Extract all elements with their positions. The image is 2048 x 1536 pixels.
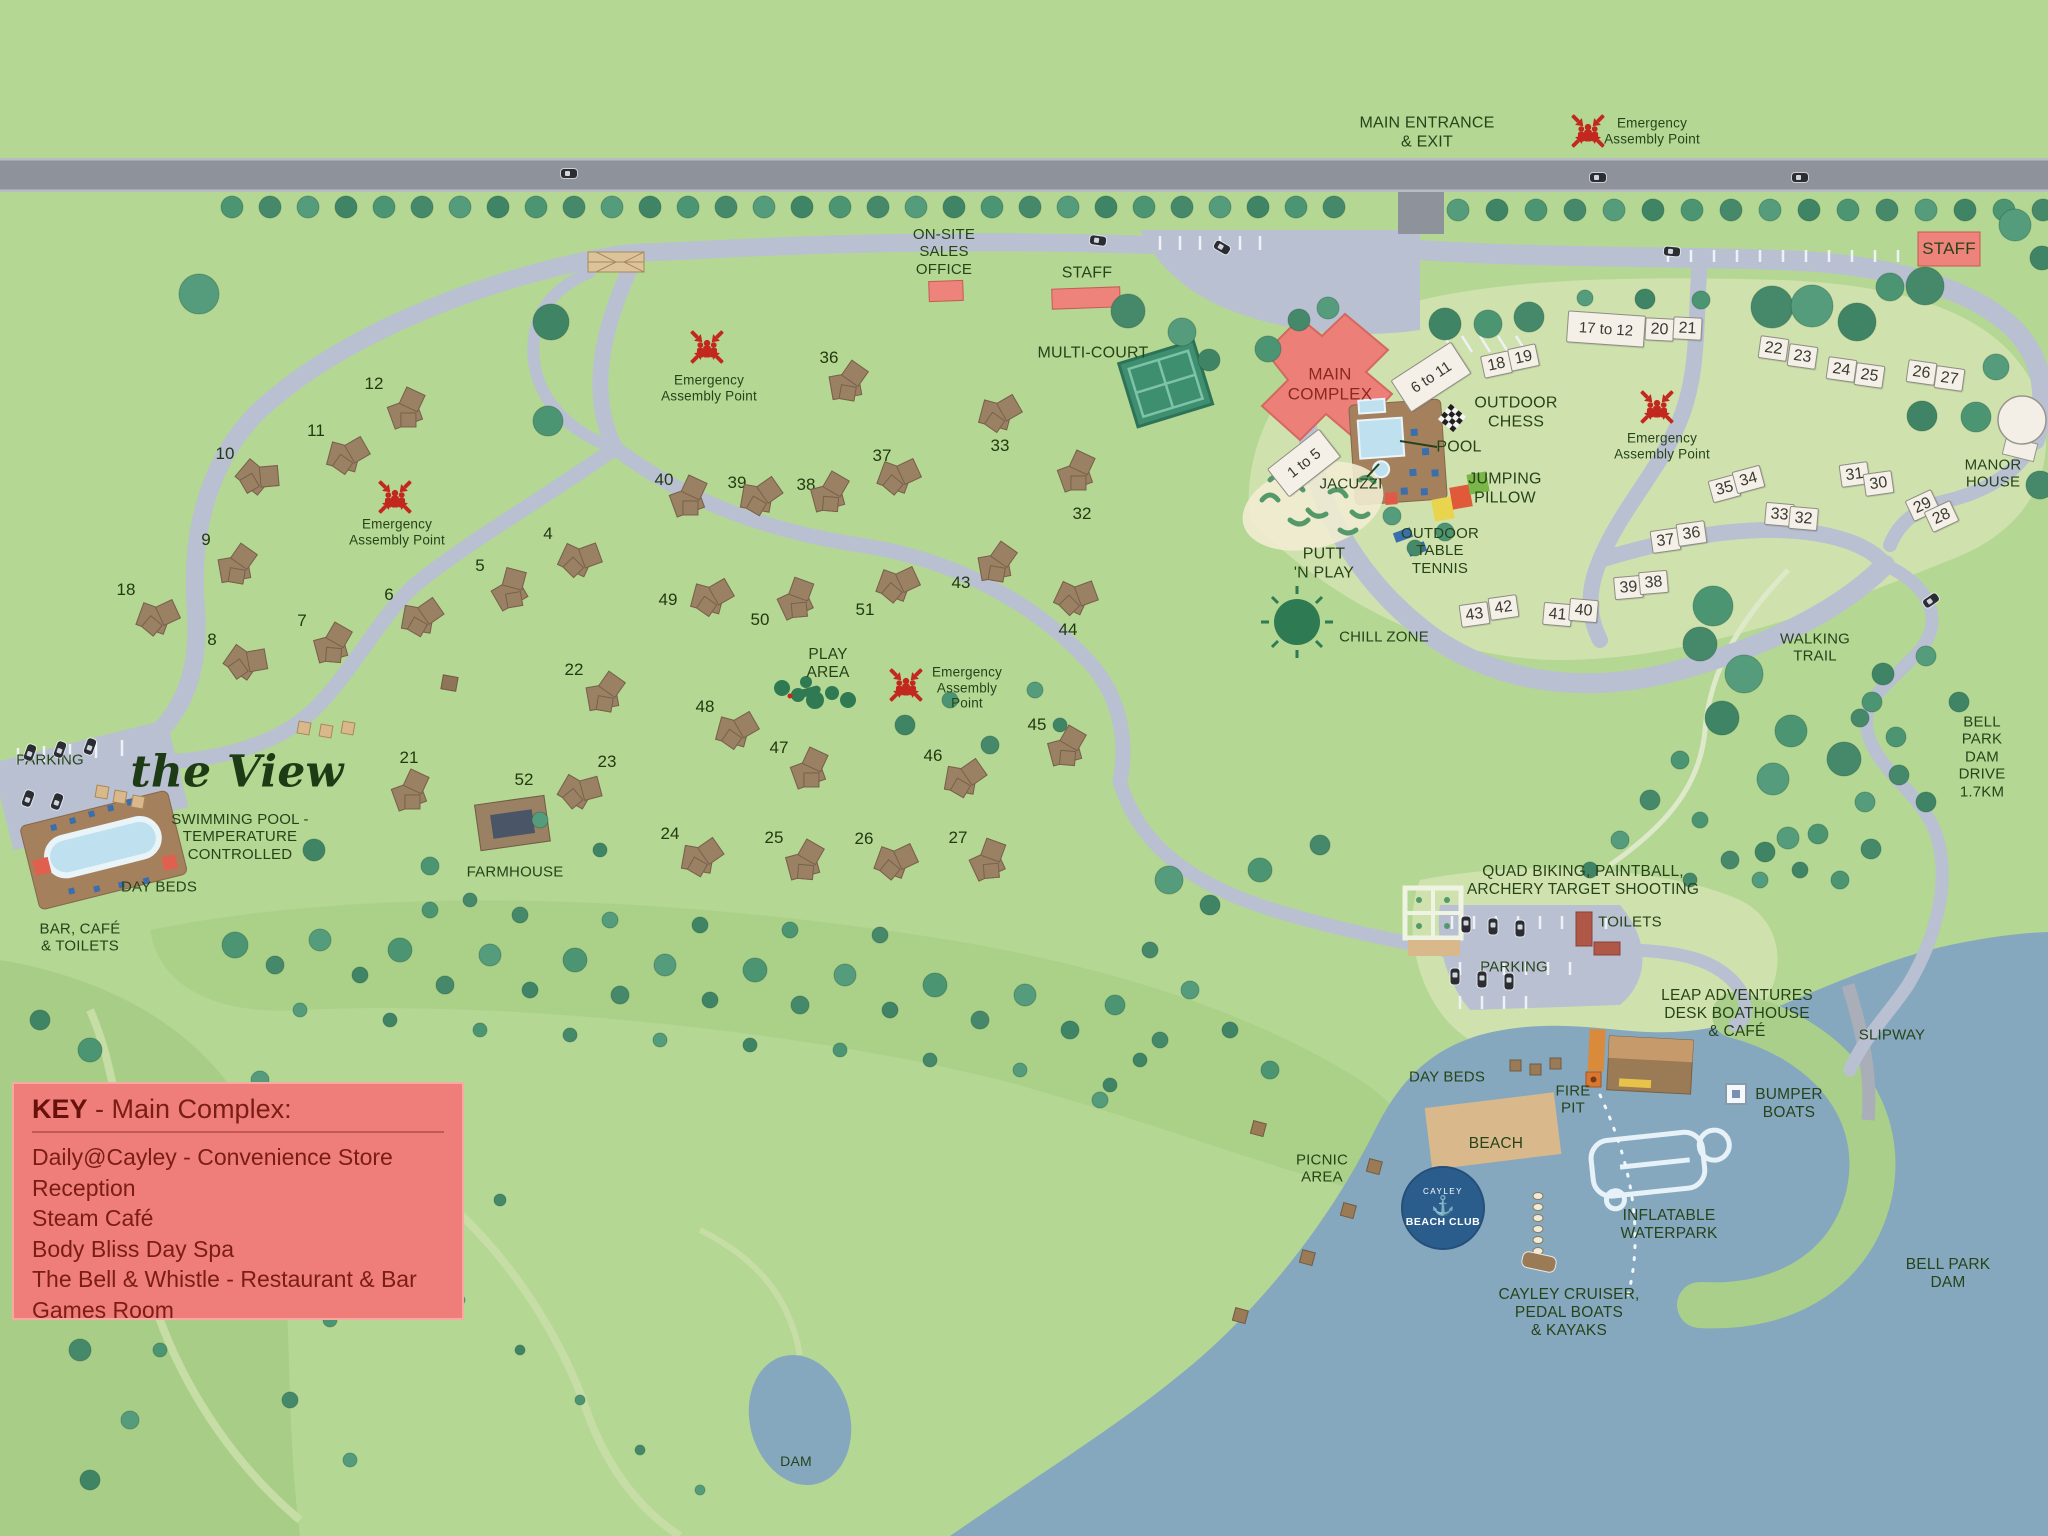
label-the-view: the View <box>130 746 343 797</box>
beach-club-logo: CAYLEY ⚓ BEACH CLUB <box>1401 1166 1485 1250</box>
tree-icon <box>833 1043 847 1057</box>
tree-icon <box>1155 866 1183 894</box>
tree-icon <box>635 1445 645 1455</box>
tree-icon <box>1255 336 1281 362</box>
lodge-40: 40 <box>1568 597 1599 622</box>
staff-building-center <box>1052 287 1121 309</box>
tree-icon <box>293 1003 307 1017</box>
tree-icon <box>895 715 915 735</box>
lodge-38: 38 <box>1638 569 1669 594</box>
lodge-number-10: 10 <box>216 444 235 464</box>
tree-icon <box>1640 790 1660 810</box>
tree-icon <box>1862 692 1882 712</box>
tree-icon <box>1949 692 1969 712</box>
tree-icon <box>69 1339 91 1361</box>
lodge-number-51: 51 <box>856 600 875 620</box>
tree-icon <box>1019 196 1041 218</box>
tree-icon <box>266 956 284 974</box>
label-bell-park-dam: BELL PARK DAM <box>1906 1256 1991 1292</box>
tree-icon <box>1683 627 1717 661</box>
tree-icon <box>1692 812 1708 828</box>
tree-icon <box>1152 1032 1168 1048</box>
tree-icon <box>1247 196 1269 218</box>
tree-icon <box>1642 199 1664 221</box>
lodge-number-26: 26 <box>855 829 874 849</box>
tree-icon <box>943 196 965 218</box>
car-icon <box>1089 234 1106 245</box>
tree-icon <box>1671 751 1689 769</box>
tree-icon <box>436 976 454 994</box>
lodge-21: 21 <box>1672 316 1702 340</box>
lodge-20: 20 <box>1644 317 1674 341</box>
lodge-number-6: 6 <box>384 585 393 605</box>
tree-icon <box>1775 715 1807 747</box>
tree-icon <box>1105 995 1125 1015</box>
tree-icon <box>1027 682 1043 698</box>
tree-icon <box>153 1343 167 1357</box>
car-icon <box>561 169 577 178</box>
tree-icon <box>383 1013 397 1027</box>
car-icon <box>1462 916 1471 932</box>
label-walking-trail: WALKING TRAIL <box>1780 631 1850 666</box>
tree-icon <box>1577 290 1593 306</box>
tree-icon <box>1999 209 2031 241</box>
tree-icon <box>563 1028 577 1042</box>
lodge-building-39 <box>735 473 787 520</box>
tree-icon <box>1013 1063 1027 1077</box>
tree-icon <box>1383 507 1401 525</box>
tree-icon <box>533 304 569 340</box>
tree-icon <box>525 196 547 218</box>
assembly-point-label: Emergency Assembly Point <box>1604 115 1700 146</box>
tree-icon <box>1171 196 1193 218</box>
tree-icon <box>1222 1022 1238 1038</box>
label-staff-right: STAFF <box>1922 239 1976 259</box>
label-jumping-pillow: JUMPING PILLOW <box>1468 470 1541 507</box>
label-bar-cafe-toilets: BAR, CAFÉ & TOILETS <box>40 921 121 956</box>
label-jacuzzi: JACUZZI <box>1319 475 1382 492</box>
tree-icon <box>532 812 548 828</box>
tree-icon <box>80 1470 100 1490</box>
tree-icon <box>1198 349 1220 371</box>
tree-icon <box>715 196 737 218</box>
tree-icon <box>121 1411 139 1429</box>
label-sales-office: ON-SITE SALES OFFICE <box>913 226 975 278</box>
lodge-number-47: 47 <box>770 738 789 758</box>
lodge-24: 24 <box>1825 356 1857 383</box>
tree-icon <box>1855 792 1875 812</box>
lodge-building-9 <box>212 542 264 589</box>
bench-canopy <box>588 252 644 272</box>
lodge-32: 32 <box>1788 505 1819 530</box>
tree-icon <box>1168 318 1196 346</box>
tree-icon <box>388 938 412 962</box>
tree-icon <box>282 1392 298 1408</box>
tree-icon <box>1133 196 1155 218</box>
tree-icon <box>611 986 629 1004</box>
sales-office-building <box>929 280 964 301</box>
tree-icon <box>179 274 219 314</box>
tree-icon <box>1693 586 1733 626</box>
lodge-number-43: 43 <box>952 573 971 593</box>
label-slipway: SLIPWAY <box>1859 1026 1925 1043</box>
car-icon <box>1664 246 1681 256</box>
tree-icon <box>1983 354 2009 380</box>
lodge-number-12: 12 <box>365 374 384 394</box>
lodge-building-24 <box>676 834 728 881</box>
tree-icon <box>1838 303 1876 341</box>
lodge-number-24: 24 <box>661 824 680 844</box>
tree-icon <box>1014 984 1036 1006</box>
tree-icon <box>923 973 947 997</box>
tree-icon <box>1285 196 1307 218</box>
main-road <box>0 158 2048 192</box>
tree-icon <box>971 1011 989 1029</box>
lodge-number-52: 52 <box>515 770 534 790</box>
tree-icon <box>1752 872 1768 888</box>
tree-icon <box>677 196 699 218</box>
tree-icon <box>1603 199 1625 221</box>
label-quad-biking: QUAD BIKING, PAINTBALL, ARCHERY TARGET S… <box>1467 863 1699 899</box>
lodge-building-36 <box>823 359 875 406</box>
tree-icon <box>335 196 357 218</box>
tree-icon <box>882 1002 898 1018</box>
tree-icon <box>1429 308 1461 340</box>
tree-icon <box>1111 294 1145 328</box>
tree-icon <box>1886 727 1906 747</box>
tree-icon <box>1057 196 1079 218</box>
tree-icon <box>494 1194 506 1206</box>
tree-icon <box>563 948 587 972</box>
tree-icon <box>1486 199 1508 221</box>
label-putt-n-play: PUTT 'N PLAY <box>1294 545 1354 582</box>
assembly-point-label: Emergency Assembly Point <box>932 665 1002 712</box>
lodge-number-45: 45 <box>1028 715 1047 735</box>
lodge-23: 23 <box>1786 343 1818 370</box>
tree-icon <box>702 992 718 1008</box>
tree-icon <box>533 406 563 436</box>
tree-icon <box>867 196 889 218</box>
label-beach: BEACH <box>1469 1135 1523 1153</box>
tree-icon <box>1142 942 1158 958</box>
label-farmhouse: FARMHOUSE <box>467 863 564 880</box>
lodge-number-46: 46 <box>924 746 943 766</box>
tree-icon <box>1310 835 1330 855</box>
anchor-icon: ⚓ <box>1431 1197 1455 1216</box>
tree-icon <box>743 1038 757 1052</box>
label-dam: DAM <box>780 1453 812 1469</box>
tree-icon <box>1447 199 1469 221</box>
bumper-boats-icon <box>1726 1084 1746 1104</box>
tree-icon <box>1181 981 1199 999</box>
tree-icon <box>1872 663 1894 685</box>
tree-icon <box>1288 309 1310 331</box>
tree-icon <box>259 196 281 218</box>
tree-icon <box>1755 842 1775 862</box>
tree-icon <box>1200 895 1220 915</box>
entrance-stub <box>1398 192 1444 234</box>
tree-icon <box>522 982 538 998</box>
label-cayley-cruiser: CAYLEY CRUISER, PEDAL BOATS & KAYAKS <box>1498 1286 1639 1340</box>
label-bumper-boats: BUMPER BOATS <box>1755 1086 1823 1122</box>
label-staff-center: STAFF <box>1062 265 1112 284</box>
lodge-number-23: 23 <box>598 752 617 772</box>
beach-club-name: BEACH CLUB <box>1406 1217 1480 1228</box>
tree-icon <box>1954 199 1976 221</box>
tree-icon <box>411 196 433 218</box>
tree-icon <box>421 857 439 875</box>
tree-icon <box>1103 1078 1117 1092</box>
tree-icon <box>1133 1053 1147 1067</box>
car-icon <box>1590 173 1606 182</box>
label-inflatable-waterpark: INFLATABLE WATERPARK <box>1620 1207 1717 1243</box>
lodge-number-32: 32 <box>1073 504 1092 524</box>
tree-icon <box>487 196 509 218</box>
label-manor-house: MANOR HOUSE <box>1965 457 2022 492</box>
tree-icon <box>753 196 775 218</box>
tree-icon <box>479 944 501 966</box>
label-pool: POOL <box>1436 439 1481 458</box>
tree-icon <box>1791 285 1833 327</box>
tree-icon <box>1827 742 1861 776</box>
tree-icon <box>1751 286 1793 328</box>
lodge-43: 43 <box>1458 601 1490 628</box>
tree-icon <box>692 917 708 933</box>
label-outdoor-chess: OUTDOOR CHESS <box>1474 394 1557 431</box>
label-play-area: PLAY AREA <box>806 646 849 682</box>
resort-map: KEY - Main Complex: Daily@Cayley - Conve… <box>0 0 2048 1536</box>
key-item: Body Bliss Day Spa <box>32 1234 444 1265</box>
lodge-42: 42 <box>1487 594 1519 621</box>
lodge-number-21: 21 <box>400 748 419 768</box>
tree-icon <box>473 1023 487 1037</box>
lodge-number-50: 50 <box>751 610 770 630</box>
tree-icon <box>905 196 927 218</box>
car-icon <box>1516 920 1525 936</box>
tree-icon <box>602 912 618 928</box>
tree-icon <box>743 958 767 982</box>
lodge-27: 27 <box>1933 365 1965 392</box>
assembly-point-label: Emergency Assembly Point <box>661 372 757 403</box>
tree-icon <box>834 964 856 986</box>
tree-icon <box>515 1345 525 1355</box>
tree-icon <box>1725 655 1763 693</box>
assembly-point-icon <box>684 324 730 370</box>
label-leap-adventures: LEAP ADVENTURES DESK BOATHOUSE & CAFÉ <box>1661 987 1813 1041</box>
label-outdoor-table-tennis: OUTDOOR TABLE TENNIS <box>1401 525 1479 577</box>
tree-icon <box>78 1038 102 1062</box>
label-swimming-pool: SWIMMING POOL - TEMPERATURE CONTROLLED <box>171 811 308 863</box>
lodge-number-4: 4 <box>543 524 552 544</box>
key-item: Games Room <box>32 1295 444 1326</box>
lodge-number-8: 8 <box>207 630 216 650</box>
lodge-number-49: 49 <box>659 590 678 610</box>
lodge-number-33: 33 <box>991 436 1010 456</box>
tree-icon <box>1798 199 1820 221</box>
lodge-number-48: 48 <box>696 697 715 717</box>
tree-icon <box>601 196 623 218</box>
tree-icon <box>1095 196 1117 218</box>
assembly-point-label: Emergency Assembly Point <box>349 516 445 547</box>
tree-icon <box>1757 763 1789 795</box>
assembly-point-icon <box>883 662 929 708</box>
lodge-number-25: 25 <box>765 828 784 848</box>
lodge-number-7: 7 <box>297 611 306 631</box>
tree-icon <box>593 843 607 857</box>
lodge-number-27: 27 <box>949 828 968 848</box>
key-item: Steam Café <box>32 1203 444 1234</box>
label-main-complex: MAIN COMPLEX <box>1288 364 1373 403</box>
lodge-number-11: 11 <box>307 421 325 441</box>
tree-icon <box>1777 827 1799 849</box>
key-legend: KEY - Main Complex: Daily@Cayley - Conve… <box>12 1082 464 1320</box>
tree-icon <box>512 907 528 923</box>
tree-icon <box>1317 297 1339 319</box>
tree-icon <box>1248 858 1272 882</box>
tree-icon <box>1808 824 1828 844</box>
tree-icon <box>1861 839 1881 859</box>
small-hut <box>441 675 458 691</box>
tree-icon <box>1564 199 1586 221</box>
tree-icon <box>981 736 999 754</box>
tree-icon <box>1323 196 1345 218</box>
tree-icon <box>695 1485 705 1495</box>
label-multi-court: MULTI-COURT <box>1038 345 1149 364</box>
key-item: Reception <box>32 1173 444 1204</box>
tree-icon <box>1906 267 1944 305</box>
lodge-22: 22 <box>1757 335 1789 362</box>
tree-icon <box>575 1395 585 1405</box>
tree-icon <box>563 196 585 218</box>
lodge-25: 25 <box>1853 362 1885 389</box>
car-icon <box>1451 968 1460 984</box>
tree-icon <box>1261 1061 1279 1079</box>
tree-icon <box>30 1010 50 1030</box>
lodge-number-44: 44 <box>1059 620 1078 640</box>
key-item: The Bell & Whistle - Restaurant & Bar <box>32 1264 444 1295</box>
tree-icon <box>782 922 798 938</box>
tree-icon <box>309 929 331 951</box>
car-icon <box>1792 173 1808 182</box>
tree-icon <box>1720 199 1742 221</box>
tree-icon <box>1792 862 1808 878</box>
assembly-point-label: Emergency Assembly Point <box>1614 430 1710 461</box>
tree-icon <box>1889 765 1909 785</box>
label-main-entrance: MAIN ENTRANCE & EXIT <box>1359 114 1494 151</box>
lodge-36: 36 <box>1675 520 1707 547</box>
tree-icon <box>352 967 368 983</box>
tree-icon <box>1907 401 1937 431</box>
tree-icon <box>981 196 1003 218</box>
tree-icon <box>653 1033 667 1047</box>
lodge-building-43 <box>972 540 1024 587</box>
key-title: KEY - Main Complex: <box>32 1094 444 1124</box>
tree-icon <box>872 927 888 943</box>
tree-icon <box>1635 289 1655 309</box>
tree-icon <box>1474 310 1502 338</box>
label-toilets: TOILETS <box>1598 913 1662 930</box>
tree-icon <box>1681 199 1703 221</box>
tree-icon <box>1611 831 1629 849</box>
label-fire-pit: FIRE PIT <box>1556 1083 1591 1118</box>
tree-icon <box>1705 701 1739 735</box>
tree-icon <box>1837 199 1859 221</box>
tree-icon <box>422 902 438 918</box>
assembly-point-icon <box>372 474 418 520</box>
label-picnic-area: PICNIC AREA <box>1296 1152 1348 1187</box>
tree-icon <box>1759 199 1781 221</box>
tree-icon <box>791 196 813 218</box>
lodge-number-18: 18 <box>117 580 136 600</box>
tree-icon <box>1061 1021 1079 1039</box>
tree-icon <box>221 196 243 218</box>
label-day-beds-left: DAY BEDS <box>121 878 197 895</box>
car-icon <box>1478 971 1487 987</box>
lodge-building-46 <box>939 755 991 802</box>
assembly-point-icon <box>1634 384 1680 430</box>
tree-icon <box>1721 851 1739 869</box>
tree-icon <box>639 196 661 218</box>
tree-icon <box>1092 1092 1108 1108</box>
lodge-number-5: 5 <box>475 556 484 576</box>
car-icon <box>1505 973 1514 989</box>
tree-icon <box>1876 199 1898 221</box>
tree-icon <box>923 1053 937 1067</box>
tree-icon <box>1876 273 1904 301</box>
tree-icon <box>463 893 477 907</box>
tree-icon <box>791 996 809 1014</box>
tree-icon <box>449 196 471 218</box>
tree-icon <box>343 1453 357 1467</box>
tree-icon <box>829 196 851 218</box>
lodge-26: 26 <box>1905 359 1937 386</box>
tree-icon <box>1915 199 1937 221</box>
tree-icon <box>1209 196 1231 218</box>
car-icon <box>1489 918 1498 934</box>
key-item: Daily@Cayley - Convenience Store <box>32 1142 444 1173</box>
lodge-number-9: 9 <box>201 530 210 550</box>
label-bell-park-dam-drive: BELL PARK DAM DRIVE 1.7KM <box>1949 714 2015 801</box>
label-day-beds-beach: DAY BEDS <box>1409 1068 1485 1085</box>
tree-icon <box>1514 302 1544 332</box>
lodge-30: 30 <box>1862 470 1894 497</box>
tree-icon <box>1831 871 1849 889</box>
tree-icon <box>222 932 248 958</box>
lodge-building-6 <box>396 594 448 641</box>
tree-icon <box>297 196 319 218</box>
tree-icon <box>1692 291 1710 309</box>
tree-icon <box>373 196 395 218</box>
tree-icon <box>1851 709 1869 727</box>
tree-icon <box>654 954 676 976</box>
label-chill-zone: CHILL ZONE <box>1339 628 1429 645</box>
tree-icon <box>1916 792 1936 812</box>
tree-icon <box>1525 199 1547 221</box>
tree-icon <box>1916 646 1936 666</box>
tree-icon <box>1961 402 1991 432</box>
label-parking-right: PARKING <box>1480 958 1548 975</box>
lodge-17-to-12: 17 to 12 <box>1566 310 1646 347</box>
key-divider <box>32 1131 444 1133</box>
lodge-building-22 <box>580 670 632 717</box>
